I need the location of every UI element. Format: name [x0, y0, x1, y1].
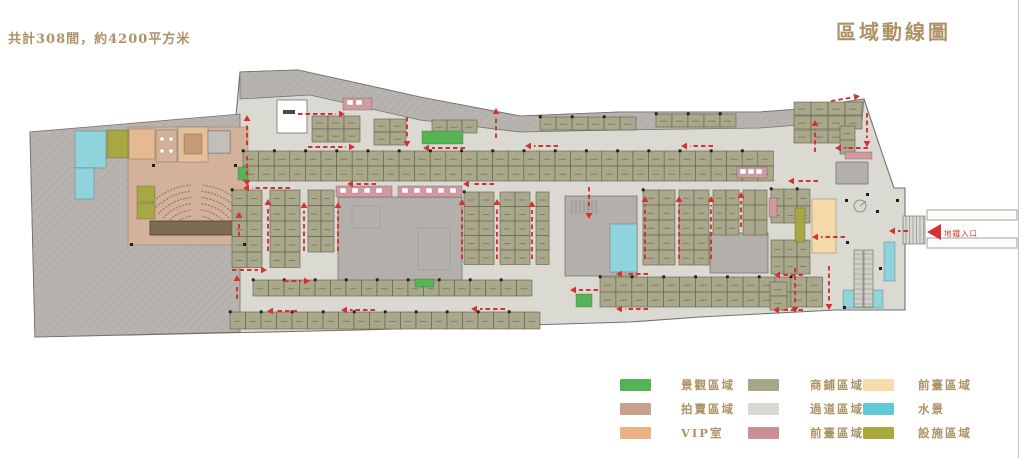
legend-swatch: [620, 403, 651, 415]
legend-label: 景觀區域: [681, 377, 735, 393]
legend-swatch: [748, 379, 779, 391]
legend-swatch: [863, 427, 894, 439]
legend-label: 設施區域: [918, 425, 972, 441]
legend-swatch: [748, 427, 779, 439]
legend-swatch: [863, 379, 894, 391]
legend-swatch: [748, 403, 779, 415]
legend-swatch: [620, 379, 651, 391]
page-border-line: [1018, 0, 1019, 458]
metro-entrance-label: 地鐵入口: [944, 228, 978, 238]
legend-label: VIP室: [681, 425, 723, 441]
legend-label: 前臺區域: [918, 377, 972, 393]
legend-label: 過道區域: [810, 401, 864, 417]
legend-label: 前臺區域: [810, 425, 864, 441]
legend-label: 商鋪區域: [810, 377, 864, 393]
legend-swatch: [620, 427, 651, 439]
legend: 景觀區域拍賣區域VIP室商鋪區域過道區域前臺區域前臺區域水景設施區域: [620, 377, 1020, 452]
floor-plan-slide: 共計308間，約4200平方米 區域動線圖 地鐵入口 景觀區域拍賣區域VIP室商…: [0, 0, 1029, 458]
legend-label: 拍賣區域: [681, 401, 735, 417]
legend-swatch: [863, 403, 894, 415]
legend-label: 水景: [918, 401, 945, 417]
